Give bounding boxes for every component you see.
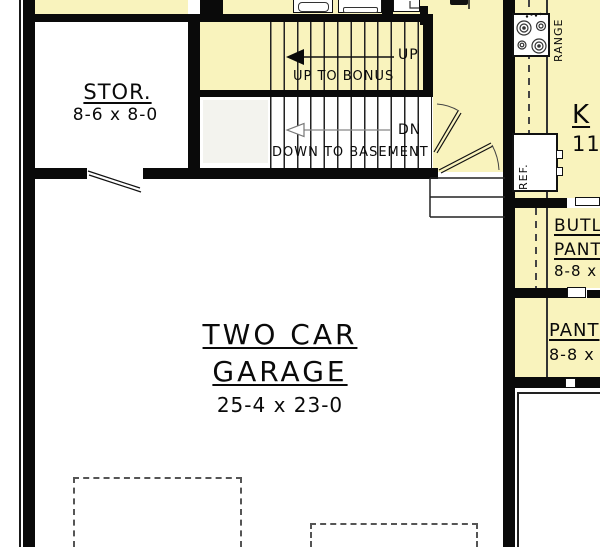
stairs-up-arrow <box>286 49 394 65</box>
range-burners <box>517 13 546 53</box>
storage-dimensions: 8-6 x 8-0 <box>63 105 168 125</box>
garage-entry-steps <box>430 178 505 217</box>
room-label-butlers-pantry-line2: PANT <box>554 240 600 260</box>
room-label-butlers-pantry-line1: BUTL <box>554 216 600 236</box>
hall-door-swing <box>434 104 461 153</box>
storage-door-swing <box>88 171 141 192</box>
range-label: RANGE <box>552 12 565 62</box>
stairs-down-arrow <box>287 124 391 137</box>
floor-plan: STOR. 8-6 x 8-0 UP UP TO BONUS DN DOWN T… <box>0 0 600 547</box>
refrigerator-label: REF. <box>517 145 530 190</box>
room-label-pantry: PANT <box>549 320 599 341</box>
room-label-storage: STOR. <box>70 80 165 104</box>
stairs-up-label: UP <box>398 47 419 63</box>
stairs-down-label: DN <box>398 122 421 138</box>
stairs-up-note: UP TO BONUS <box>293 69 394 84</box>
room-label-kitchen: K <box>572 100 590 130</box>
kitchen-dimensions: 11 <box>572 132 600 156</box>
garage-dimensions: 25-4 x 23-0 <box>190 393 370 417</box>
room-label-garage-line1: TWO CAR <box>190 318 370 351</box>
room-label-garage-line2: GARAGE <box>190 355 370 388</box>
fixture-l-glyph <box>410 1 419 8</box>
garage-door-swing <box>439 143 499 173</box>
stairs-down-note: DOWN TO BASEMENT <box>272 145 429 160</box>
butlers-pantry-dimensions: 8-8 x <box>554 262 597 280</box>
pantry-dimensions: 8-8 x <box>549 345 595 364</box>
